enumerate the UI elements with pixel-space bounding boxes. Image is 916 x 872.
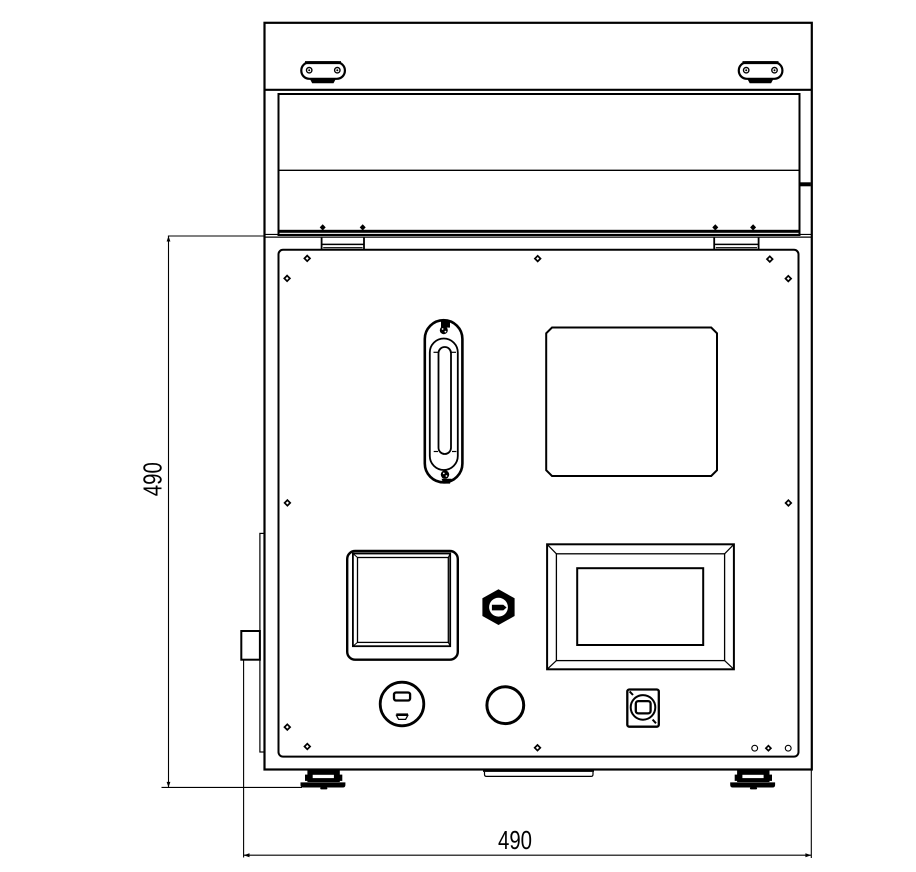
svg-text:490: 490	[140, 462, 168, 496]
svg-text:490: 490	[498, 827, 532, 855]
